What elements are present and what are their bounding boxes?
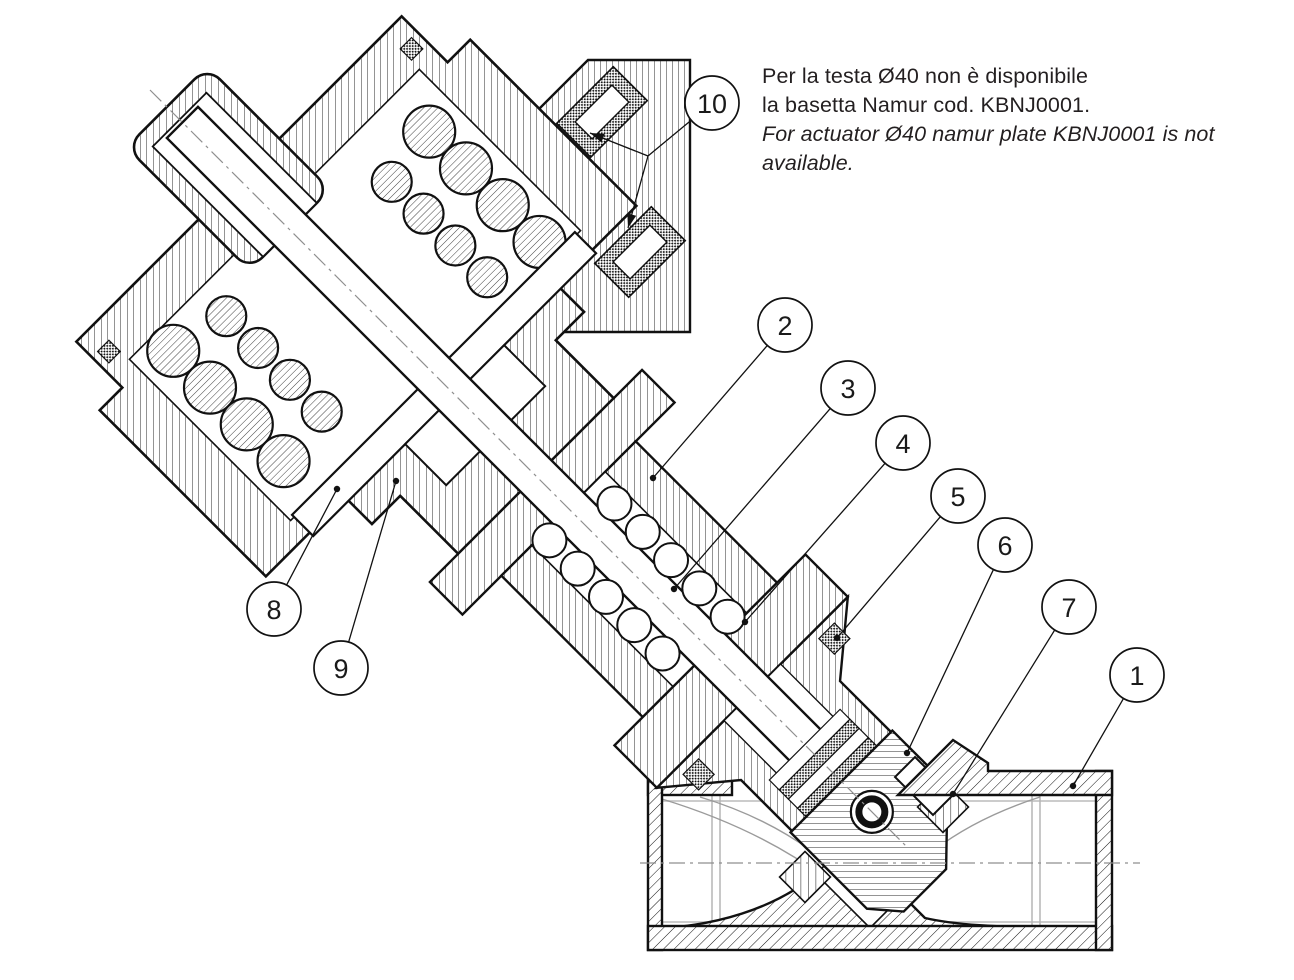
leader-dot	[950, 791, 956, 797]
callout-3: 3	[671, 361, 875, 592]
body-bottom-wall	[648, 926, 1112, 950]
callout-number: 10	[697, 89, 727, 119]
callout-number: 5	[950, 482, 965, 512]
note-line-italian-2: la basetta Namur cod. KBNJ0001.	[762, 91, 1262, 120]
body-top-wall-right	[898, 740, 1112, 795]
leader-line	[653, 345, 767, 478]
callout-7: 7	[950, 580, 1096, 797]
callout-number: 6	[997, 531, 1012, 561]
leader-dot	[393, 478, 399, 484]
leader-dot	[1070, 783, 1076, 789]
body-right-end	[1096, 771, 1112, 950]
callout-number: 2	[777, 311, 792, 341]
note-line-italian-1: Per la testa Ø40 non è disponibile	[762, 62, 1262, 91]
leader-dot	[650, 475, 656, 481]
leader-dot	[904, 750, 910, 756]
callout-number: 8	[266, 595, 281, 625]
leader-line	[907, 569, 993, 753]
leader-line	[953, 630, 1055, 794]
callout-number: 4	[895, 429, 910, 459]
note-block: Per la testa Ø40 non è disponibile la ba…	[762, 62, 1262, 178]
body-left-end	[648, 771, 662, 950]
callout-number: 7	[1061, 593, 1076, 623]
callout-number: 3	[840, 374, 855, 404]
note-line-english: For actuator Ø40 namur plate KBNJ0001 is…	[762, 120, 1262, 178]
leader-dot	[334, 486, 340, 492]
callout-number: 1	[1129, 661, 1144, 691]
leader-line	[837, 517, 940, 638]
leader-dot	[742, 619, 748, 625]
callout-6: 6	[904, 518, 1032, 756]
callout-1: 1	[1070, 648, 1164, 789]
leader-dot	[834, 635, 840, 641]
drawing-page: 12345678910 Per la testa Ø40 non è dispo…	[0, 0, 1294, 980]
callout-number: 9	[333, 654, 348, 684]
leader-dot	[671, 586, 677, 592]
